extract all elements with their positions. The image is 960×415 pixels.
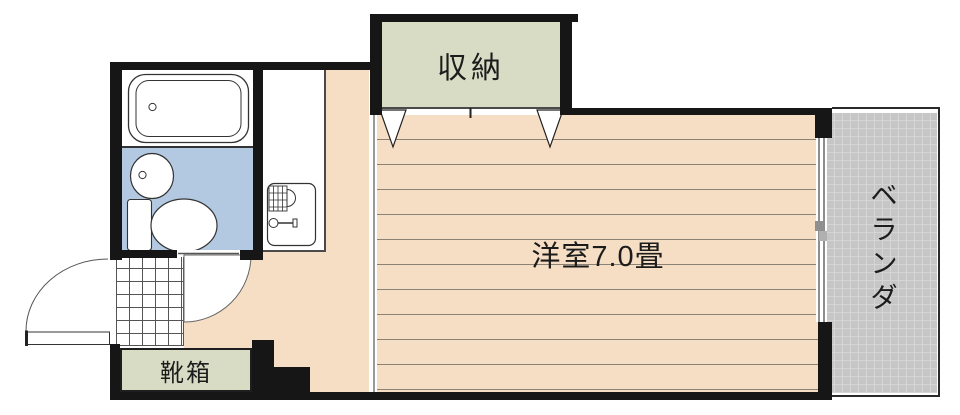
entry-door-leaf [27,332,110,345]
entry-door-arc [26,259,108,331]
kitchen-area [263,70,325,252]
kitchen-right-edge [324,70,326,252]
wall-closet-left [370,14,382,115]
bath-toilet-divider [122,146,253,148]
toilet-area [122,148,253,252]
room-divider-rail [373,115,375,392]
wall-shoebox-right [252,340,274,400]
kitchen-bottom-edge [263,250,325,252]
bathroom-area [122,70,253,148]
wall-bottom-step [274,367,310,400]
wall-closet-right [560,14,572,115]
wall-bathroom-bottom-stub [240,250,263,260]
closet-opening-edge [382,107,560,109]
shoe-box-label: 靴箱 [160,353,212,388]
floorplan: 靴箱 収納 洋室7.0畳 ベ ラ ン ダ [0,0,960,415]
wall-top-left [110,62,372,70]
entry-door [25,259,110,346]
veranda-label: ベ ラ ン ダ [866,177,902,317]
wall-closet-top [370,14,578,22]
genkan-tile [116,255,184,346]
western-room-label: 洋室7.0畳 [377,115,819,392]
corridor-floor [325,70,369,392]
window-glass-line-right [823,138,825,322]
wall-bathroom-bottom [110,250,177,258]
wall-left-upper [110,62,122,260]
wall-bottom [110,392,832,400]
wall-top-right [570,108,832,115]
closet-label: 収納 [382,22,560,107]
wall-bathroom-right [253,70,263,260]
window-latch-lower [819,231,827,241]
wall-window-bottom-stub [818,322,832,400]
shoe-box: 靴箱 [120,348,252,392]
